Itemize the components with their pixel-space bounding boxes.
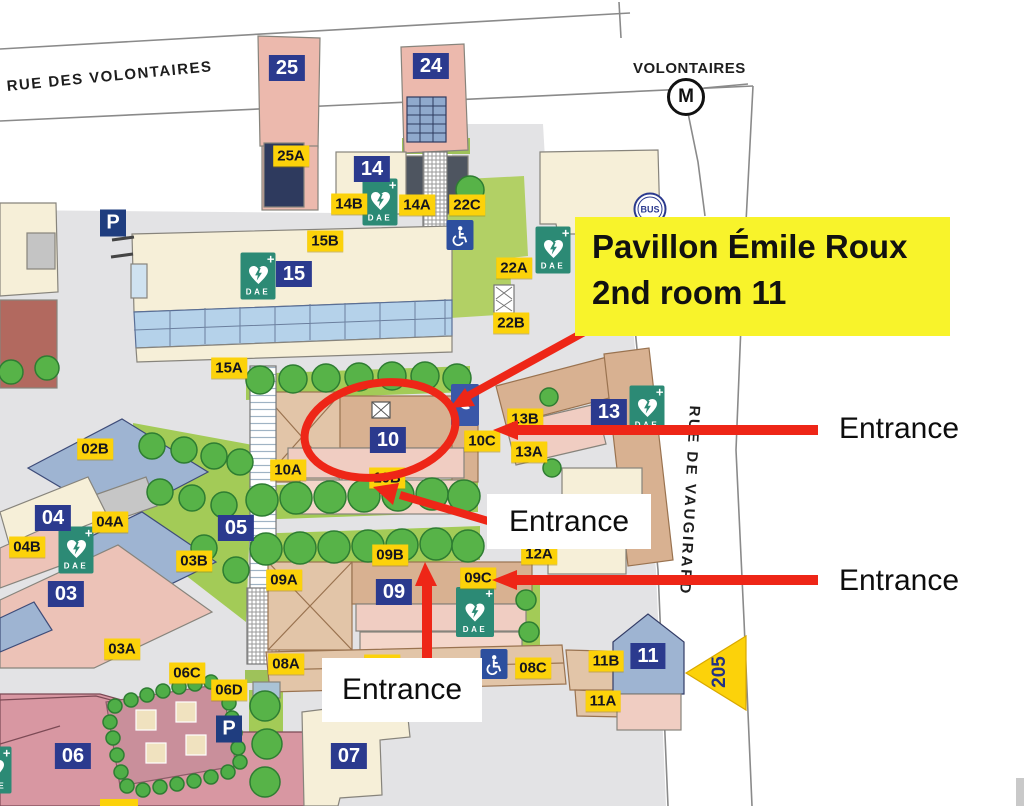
parking-sign-north: P: [100, 210, 126, 237]
building-label-05: 05: [218, 515, 254, 541]
plus-icon: +: [562, 227, 570, 240]
building-label-08C: 08C: [515, 658, 551, 679]
building-label-09A: 09A: [266, 570, 302, 591]
building-label-10C: 10C: [464, 431, 500, 452]
scrollbar-thumb[interactable]: [1016, 778, 1024, 806]
building-label-13B: 13B: [507, 409, 543, 430]
route-205-label: 205: [709, 656, 731, 688]
building-label-10A: 10A: [270, 460, 306, 481]
plus-icon: +: [3, 747, 11, 760]
building-label-03: 03: [48, 581, 84, 607]
highlight-note: Pavillon Émile Roux 2nd room 11: [575, 217, 950, 336]
dae-sign-14: + DAE: [363, 179, 398, 226]
building-label-06: 06: [55, 743, 91, 769]
building-label-15B: 15B: [307, 231, 343, 252]
building-label-03A: 03A: [104, 639, 140, 660]
heart-bolt-icon: [64, 538, 88, 561]
building-label-08A: 08A: [268, 654, 304, 675]
building-label-14B: 14B: [331, 194, 367, 215]
heart-bolt-icon: [635, 397, 659, 420]
wheelchair-icon: [450, 225, 471, 246]
building-label-04B: 04B: [9, 537, 45, 558]
cropped-label: [100, 799, 138, 806]
telephone-icon: [455, 395, 475, 415]
building-label-10B: 10B: [369, 468, 405, 489]
dae-text: DAE: [64, 562, 88, 571]
dae-sign-15: + DAE: [241, 253, 276, 300]
wheelchair-sign-22: [447, 220, 474, 250]
building-label-11: 11: [630, 643, 665, 669]
heart-bolt-icon: [0, 758, 6, 781]
building-label-22A: 22A: [496, 258, 532, 279]
entrance-text: Entrance: [509, 505, 629, 539]
dae-sign-04: + DAE: [59, 527, 94, 574]
dae-text: DAE: [463, 625, 487, 634]
building-label-13A: 13A: [511, 442, 547, 463]
wheelchair-sign-08: [481, 649, 508, 679]
dae-sign-09: + DAE: [456, 587, 494, 637]
plus-icon: +: [656, 386, 664, 399]
building-label-10: 10: [370, 427, 406, 453]
metro-station-icon: M: [667, 78, 705, 116]
building-label-15: 15: [276, 261, 312, 287]
highlight-line2: 2nd room 11: [592, 270, 950, 316]
dae-text: DAE: [246, 288, 270, 297]
building-label-02B: 02B: [77, 439, 113, 460]
dae-sign-06-partial: + DAE: [0, 747, 12, 794]
building-label-14: 14: [354, 156, 390, 182]
building-label-14A: 14A: [399, 195, 435, 216]
building-label-06C: 06C: [169, 663, 205, 684]
building-label-09B: 09B: [372, 545, 408, 566]
parking-sign-south: P: [216, 716, 242, 743]
building-label-15A: 15A: [211, 358, 247, 379]
building-label-09: 09: [376, 579, 412, 605]
entrance-label-bottom: Entrance: [322, 658, 482, 722]
building-label-04: 04: [35, 505, 71, 531]
building-label-13: 13: [591, 399, 627, 425]
entrance-text: Entrance: [342, 673, 462, 707]
building-label-09C: 09C: [460, 568, 496, 589]
telephone-sign: [451, 384, 479, 426]
dae-text: DAE: [368, 214, 392, 223]
plus-icon: +: [485, 587, 493, 600]
entrance-label-center: Entrance: [487, 494, 651, 549]
heart-bolt-icon: [246, 264, 270, 287]
dae-sign-22a: + DAE: [536, 227, 571, 274]
building-label-07: 07: [331, 743, 367, 769]
campus-map: RUE DES VOLONTAIRES VOLONTAIRES RUE DE V…: [0, 0, 1024, 806]
map-base-drawing: [0, 0, 1024, 806]
dae-text: DAE: [0, 782, 6, 791]
building-label-03B: 03B: [176, 551, 212, 572]
building-label-24: 24: [413, 53, 449, 79]
dae-sign-13: + DAE: [630, 386, 665, 433]
dae-text: DAE: [635, 421, 659, 430]
building-label-11A: 11A: [586, 691, 621, 712]
metro-m-letter: M: [678, 86, 694, 108]
entrance-label-right-top: Entrance: [831, 409, 967, 449]
wheelchair-icon: [484, 654, 505, 675]
building-label-25A: 25A: [273, 146, 309, 167]
heart-bolt-icon: [541, 238, 565, 261]
street-volontaires-station: VOLONTAIRES: [633, 60, 746, 77]
building-label-06D: 06D: [211, 680, 247, 701]
building-label-11B: 11B: [589, 651, 624, 672]
highlight-line1: Pavillon Émile Roux: [592, 224, 950, 270]
building-label-22B: 22B: [493, 313, 529, 334]
plus-icon: +: [267, 253, 275, 266]
building-label-04A: 04A: [92, 512, 128, 533]
dae-text: DAE: [541, 262, 565, 271]
entrance-label-right-bottom: Entrance: [831, 561, 967, 601]
building-label-22C: 22C: [449, 195, 485, 216]
heart-bolt-icon: [463, 601, 487, 624]
heart-bolt-icon: [368, 190, 392, 213]
building-label-25: 25: [269, 55, 305, 81]
